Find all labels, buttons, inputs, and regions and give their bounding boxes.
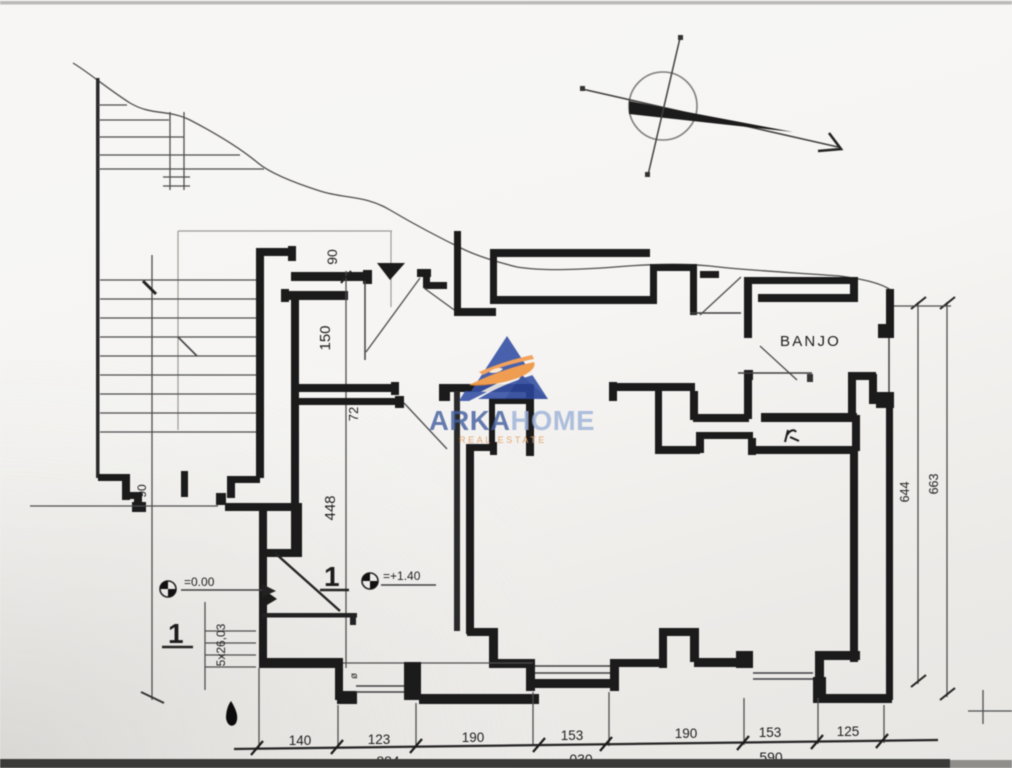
svg-text:150: 150 [317, 325, 334, 350]
svg-text:644: 644 [898, 482, 912, 503]
svg-text:90: 90 [135, 484, 149, 498]
svg-text:=0.00: =0.00 [184, 575, 215, 589]
svg-text:ARKAHOME: ARKAHOME [429, 405, 595, 436]
svg-text:125: 125 [837, 724, 860, 739]
svg-text:663: 663 [927, 474, 941, 495]
svg-text:140: 140 [289, 733, 312, 748]
svg-text:ø: ø [349, 673, 360, 679]
svg-text:BANJO: BANJO [780, 333, 841, 350]
svg-text:153: 153 [759, 725, 782, 740]
svg-text:190: 190 [462, 730, 485, 745]
svg-text:90: 90 [324, 249, 340, 265]
svg-text:123: 123 [368, 732, 391, 747]
svg-text:1: 1 [324, 561, 340, 592]
svg-text:5x26,03: 5x26,03 [214, 623, 228, 666]
svg-text:1: 1 [168, 618, 184, 649]
svg-text:448: 448 [322, 495, 339, 520]
svg-text:REAL ESTATE: REAL ESTATE [459, 435, 547, 445]
svg-text:=+1.40: =+1.40 [383, 569, 421, 583]
svg-text:153: 153 [561, 728, 584, 743]
svg-text:190: 190 [675, 726, 698, 741]
svg-text:72: 72 [346, 407, 361, 421]
